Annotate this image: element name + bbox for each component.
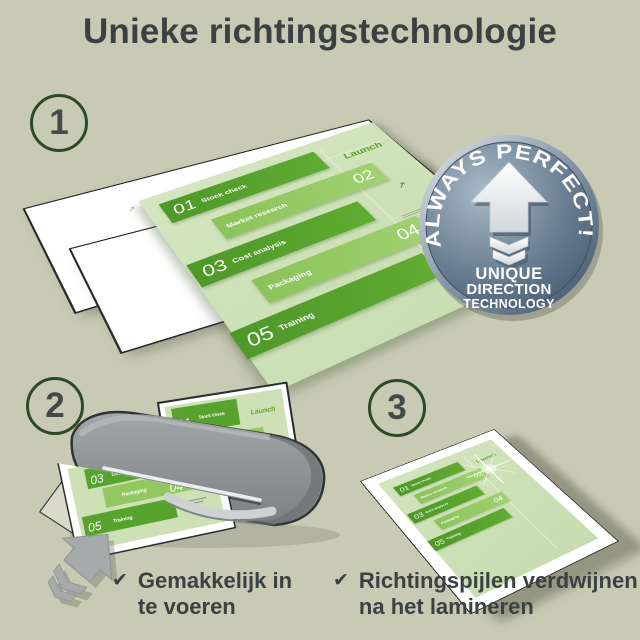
row-number: 01 — [398, 485, 411, 493]
row-label: Training — [277, 311, 316, 332]
row-number: 05 — [242, 324, 278, 350]
checklist-text-line: Richtingspijlen verdwijnen — [359, 568, 638, 594]
row-label: Packaging — [267, 269, 313, 291]
row-label: Training — [446, 532, 462, 541]
row-label: Stock check — [410, 477, 431, 487]
doc-direction-icon: ↗ — [393, 179, 411, 191]
row-label: Market research — [420, 486, 448, 499]
row-number: 05 — [433, 538, 447, 548]
row-number: 01 — [169, 198, 199, 217]
row-label: Cost analysis — [425, 502, 449, 514]
step-1-circle: 1 — [30, 94, 88, 152]
row-number: 03 — [198, 258, 231, 280]
row-number: 03 — [412, 511, 425, 520]
check-icon: ✔ — [112, 568, 128, 620]
always-perfect-badge: ALWAYS PERFECT! UNIQUE DIRECTION TECHNOL… — [416, 132, 606, 322]
badge-line3: TECHNOLOGY — [463, 297, 555, 311]
checklist-text-line: na het lamineren — [359, 594, 638, 620]
row-label: Packaging — [440, 515, 459, 525]
check-icon: ✔ — [333, 568, 349, 620]
step-1-number: 1 — [49, 103, 68, 143]
step-3-number: 3 — [387, 388, 406, 428]
step-3-circle: 3 — [368, 379, 426, 437]
row-label: Market research — [225, 202, 289, 228]
row-number: 04 — [492, 495, 505, 503]
pouch-direction-icon: ↗ — [125, 205, 138, 214]
step-2-number: 2 — [45, 386, 64, 426]
badge-line2: DIRECTION — [466, 281, 551, 298]
launch-label: Launch — [340, 140, 385, 160]
checklist-item-easy-feed: ✔ Gemakkelijk in te voeren — [112, 568, 292, 620]
row-label: Cost analysis — [231, 239, 288, 264]
row-label: Stock check — [200, 183, 249, 203]
checklist-item-arrows-disappear: ✔ Richtingspijlen verdwijnen na het lami… — [333, 568, 638, 620]
page-title: Unieke richtingstechnologie — [0, 12, 640, 52]
step-2-circle: 2 — [26, 377, 84, 435]
checklist-text-line: te voeren — [138, 594, 292, 620]
row-number: 02 — [348, 168, 378, 185]
checklist-text-line: Gemakkelijk in — [138, 568, 292, 594]
